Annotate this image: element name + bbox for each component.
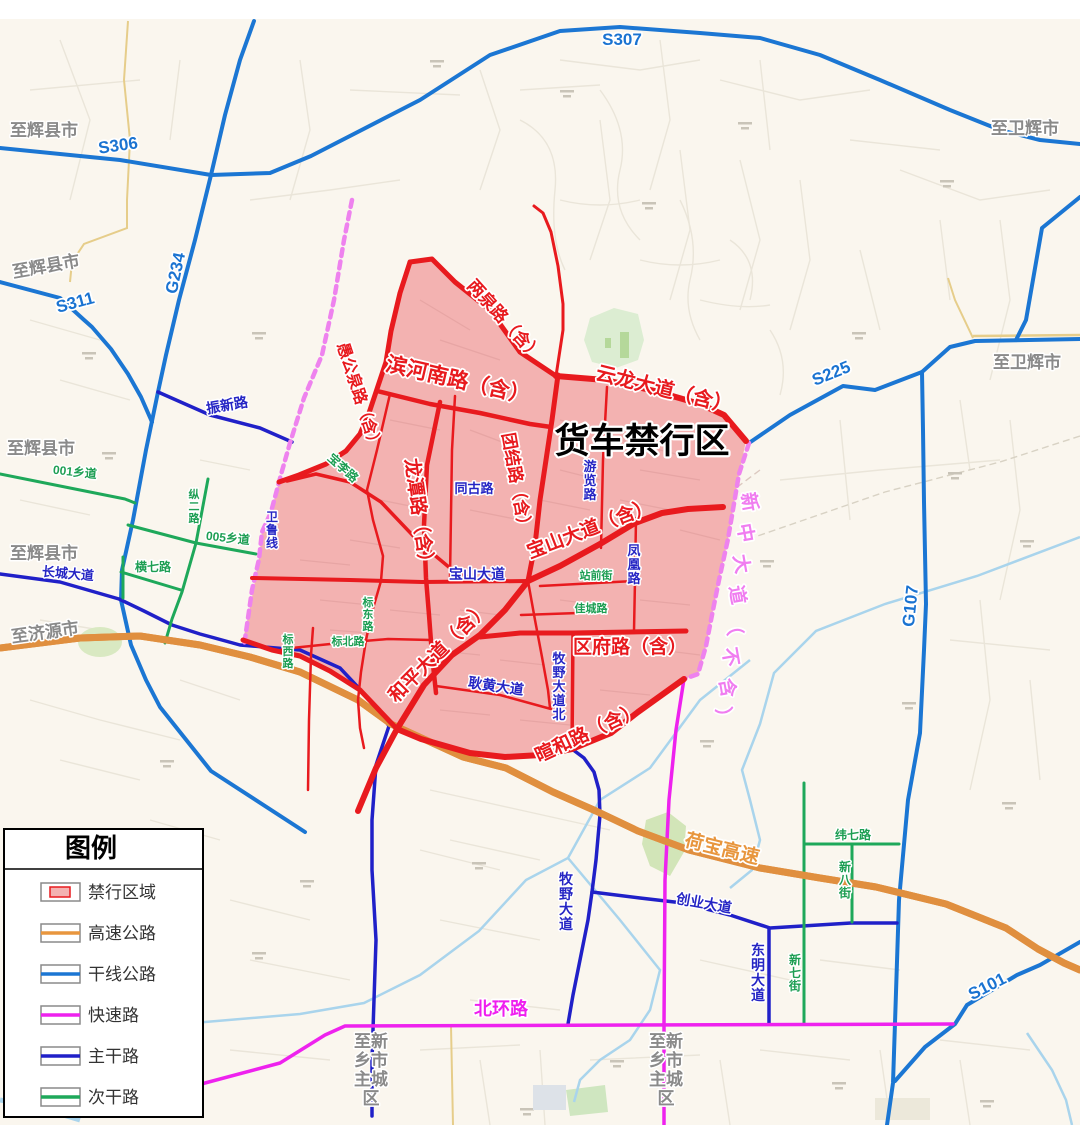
svg-text:至新: 至新: [649, 1031, 683, 1051]
svg-text:新: 新: [737, 491, 763, 514]
svg-text:牧野大道: 牧野大道: [559, 871, 574, 932]
svg-text:S307: S307: [602, 30, 642, 49]
svg-text:区府路（含）: 区府路（含）: [573, 635, 687, 658]
svg-text:）: ）: [712, 706, 738, 729]
svg-text:至卫辉市: 至卫辉市: [991, 118, 1059, 138]
svg-text:同古路: 同古路: [454, 481, 494, 496]
svg-text:区: 区: [363, 1089, 380, 1108]
svg-text:标北路: 标北路: [331, 634, 366, 648]
svg-text:横七路: 横七路: [135, 559, 172, 574]
svg-text:道: 道: [725, 584, 751, 607]
svg-text:乡市: 乡市: [354, 1050, 388, 1070]
svg-text:次干路: 次干路: [88, 1088, 139, 1107]
svg-text:宝山大道: 宝山大道: [449, 566, 505, 582]
svg-text:大: 大: [729, 553, 755, 576]
svg-text:中: 中: [733, 522, 759, 545]
svg-text:东明大道: 东明大道: [751, 942, 765, 1003]
svg-text:不: 不: [718, 646, 742, 668]
svg-text:北环路: 北环路: [474, 998, 529, 1019]
svg-text:高速公路: 高速公路: [88, 924, 156, 943]
svg-text:主城: 主城: [649, 1069, 683, 1089]
svg-text:新七街: 新七街: [788, 952, 801, 993]
svg-text:凤凰路: 凤凰路: [627, 543, 641, 586]
svg-text:纵二路: 纵二路: [189, 487, 201, 525]
svg-text:区: 区: [658, 1089, 675, 1108]
svg-text:纬七路: 纬七路: [835, 827, 872, 842]
svg-text:至卫辉市: 至卫辉市: [993, 352, 1061, 372]
svg-text:至新: 至新: [354, 1031, 388, 1051]
svg-text:至辉县市: 至辉县市: [10, 543, 78, 563]
svg-text:货车禁行区: 货车禁行区: [554, 422, 729, 461]
svg-text:快速路: 快速路: [88, 1006, 139, 1025]
svg-text:站前街: 站前街: [580, 568, 613, 582]
svg-text:标西路: 标西路: [282, 632, 295, 670]
svg-text:至辉县市: 至辉县市: [10, 120, 78, 140]
svg-text:主城: 主城: [354, 1069, 388, 1089]
svg-text:乡市: 乡市: [649, 1050, 683, 1070]
svg-text:游览路: 游览路: [583, 459, 597, 502]
svg-text:牧野大道北: 牧野大道北: [552, 651, 566, 722]
svg-text:至辉县市: 至辉县市: [7, 438, 75, 458]
svg-text:（: （: [721, 615, 747, 638]
svg-text:干线公路: 干线公路: [88, 965, 156, 984]
svg-text:图例: 图例: [65, 833, 117, 863]
svg-text:标东路: 标东路: [362, 595, 375, 633]
svg-text:主干路: 主干路: [88, 1047, 139, 1066]
svg-text:佳城路: 佳城路: [575, 601, 609, 615]
svg-text:禁行区域: 禁行区域: [88, 883, 156, 902]
svg-text:卫鲁线: 卫鲁线: [265, 510, 278, 550]
svg-text:新八街: 新八街: [838, 859, 852, 900]
